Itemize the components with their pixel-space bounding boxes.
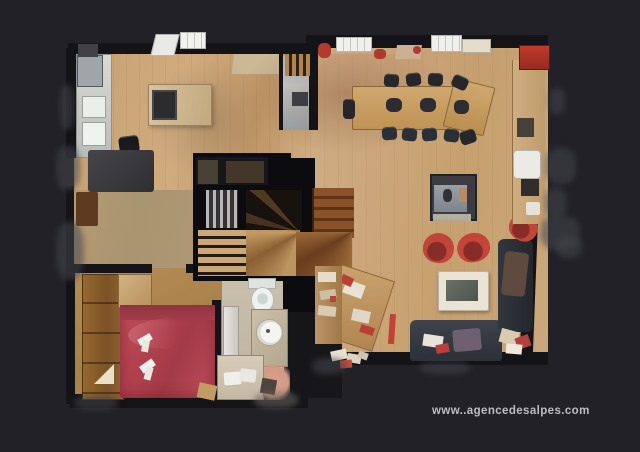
window-1 <box>336 37 372 52</box>
scan-noise-12 <box>60 84 74 130</box>
slot-shelf <box>285 54 310 76</box>
island-cooktop <box>152 90 177 120</box>
table-shadow-3 <box>454 100 469 114</box>
hall-door-mat <box>76 192 98 226</box>
red-cabinet <box>519 45 550 70</box>
dining-chair-5 <box>382 126 398 140</box>
scan-noise-7 <box>56 222 84 280</box>
scan-noise-8 <box>74 396 118 410</box>
chaise-blanket <box>501 251 529 297</box>
window-3 <box>462 39 491 53</box>
watermark: www..agencedesalpes.com <box>432 405 590 417</box>
fridge <box>77 55 103 87</box>
scan-noise-5 <box>556 236 582 258</box>
dining-chair-2 <box>405 72 421 86</box>
fireplace-figure <box>443 189 452 202</box>
coffee-machine <box>513 150 541 179</box>
sideboard-white-item <box>526 202 540 215</box>
dining-chair-6 <box>401 127 417 141</box>
kitchen-window <box>180 32 206 49</box>
stair-dark-fan <box>246 190 302 232</box>
dining-chair-3 <box>428 73 444 87</box>
scan-noise-11 <box>254 392 298 408</box>
top-left-object <box>78 44 98 57</box>
dining-chair-1 <box>384 73 400 87</box>
scan-noise-6 <box>56 146 80 190</box>
basin-faucet <box>266 329 270 333</box>
shelf-red-fleck <box>330 296 336 302</box>
window-2 <box>431 35 462 52</box>
stair-glass-panel-1 <box>198 160 218 184</box>
scan-noise-3 <box>545 188 567 218</box>
table-shadow-2 <box>420 98 436 112</box>
shelf-clutter-1 <box>318 272 336 282</box>
stair-slat-window <box>206 190 238 228</box>
divider-kitchen-greatroom <box>309 44 318 130</box>
sideboard-dark-square <box>521 179 539 196</box>
floorplan-viewport[interactable]: www..agencedesalpes.com <box>0 0 640 452</box>
red-curtain-2 <box>374 49 386 59</box>
stair-glass-panel-2 <box>226 161 264 183</box>
sideboard-dark-box <box>517 118 534 137</box>
divider-kitchen-storeroom <box>279 50 283 130</box>
dining-chair-7 <box>421 127 437 141</box>
dark-table <box>88 150 154 192</box>
hearth <box>433 214 471 221</box>
dining-chair-head <box>343 99 355 119</box>
dining-chair-8 <box>443 128 460 143</box>
coffee-table-top <box>446 280 478 301</box>
scan-noise-10 <box>420 362 470 374</box>
scan-noise-2 <box>546 148 576 184</box>
shelf-clutter-3 <box>318 305 337 317</box>
sofa-cushion <box>452 328 482 352</box>
fireplace-warm-glow <box>459 188 467 202</box>
stair-light-winders <box>246 230 300 276</box>
bedroom-top-wall-a <box>74 264 152 273</box>
dresser <box>118 274 152 308</box>
tub-towel-2 <box>239 368 256 383</box>
red-curtain-3 <box>413 46 421 54</box>
stair-lower-flight <box>198 230 246 276</box>
sideboard <box>512 60 545 224</box>
scan-noise-1 <box>549 88 565 114</box>
red-curtain-1 <box>318 43 331 58</box>
kitchen-sink-1 <box>82 96 106 118</box>
washbasin <box>256 319 283 346</box>
kitchen-sink-2 <box>82 122 106 146</box>
left-wall-bedroom <box>66 266 75 404</box>
scan-noise-9 <box>312 358 346 374</box>
store-room-desk <box>292 92 308 106</box>
stair-upper-flight <box>312 188 354 238</box>
corner-clutter-3 <box>506 343 523 354</box>
table-shadow-1 <box>386 98 402 112</box>
